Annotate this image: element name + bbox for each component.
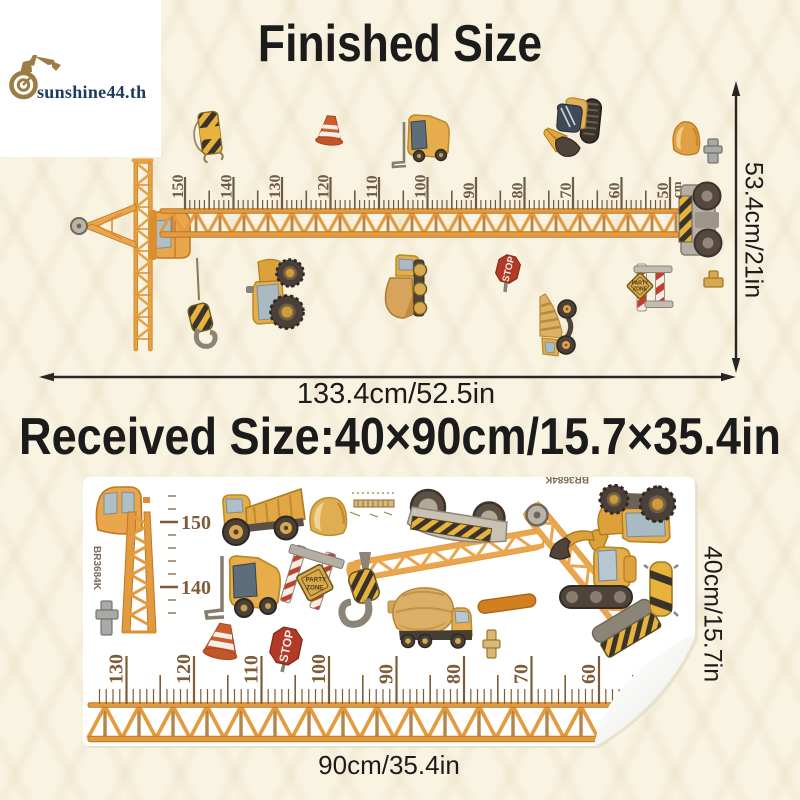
svg-text:80: 80: [443, 664, 465, 684]
svg-text:130: 130: [106, 654, 128, 684]
svg-text:120: 120: [173, 654, 195, 684]
svg-text:PARTY: PARTY: [306, 577, 327, 584]
svg-text:70: 70: [511, 664, 533, 684]
svg-text:BR3684K: BR3684K: [91, 546, 102, 591]
svg-text:100: 100: [308, 654, 330, 684]
svg-text:150: 150: [181, 512, 211, 534]
svg-text:60: 60: [578, 664, 600, 684]
svg-text:90: 90: [376, 664, 398, 684]
svg-text:140: 140: [181, 577, 211, 599]
svg-text:ZONE: ZONE: [306, 585, 323, 592]
svg-text:BR3684K: BR3684K: [544, 473, 589, 484]
svg-text:110: 110: [241, 655, 263, 684]
